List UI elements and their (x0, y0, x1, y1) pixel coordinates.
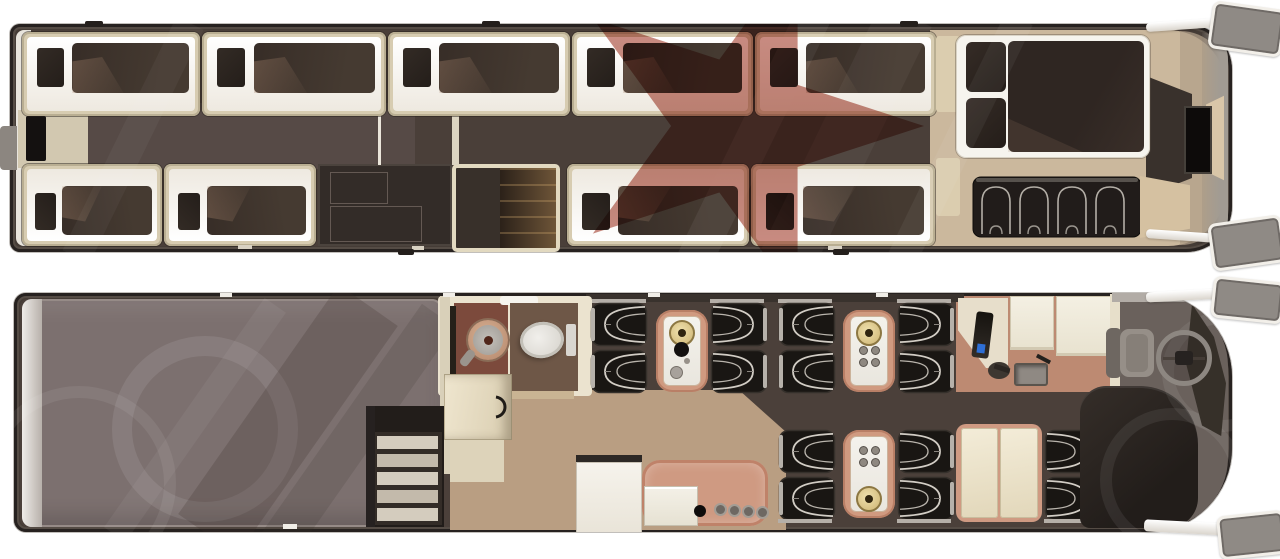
roof-vent (900, 21, 918, 27)
rear-ladder-tab (0, 126, 17, 170)
bus-floorplan-render (0, 0, 1280, 559)
side-mirror (1210, 275, 1280, 324)
roof-vent (85, 21, 103, 27)
roof-vent (482, 21, 500, 27)
mirrors-and-vents-layer (0, 0, 1280, 559)
side-mirror (1207, 214, 1280, 272)
side-mirror (1207, 0, 1280, 58)
side-mirror (1216, 510, 1280, 559)
roof-vent (398, 249, 414, 255)
roof-vent (833, 249, 849, 255)
